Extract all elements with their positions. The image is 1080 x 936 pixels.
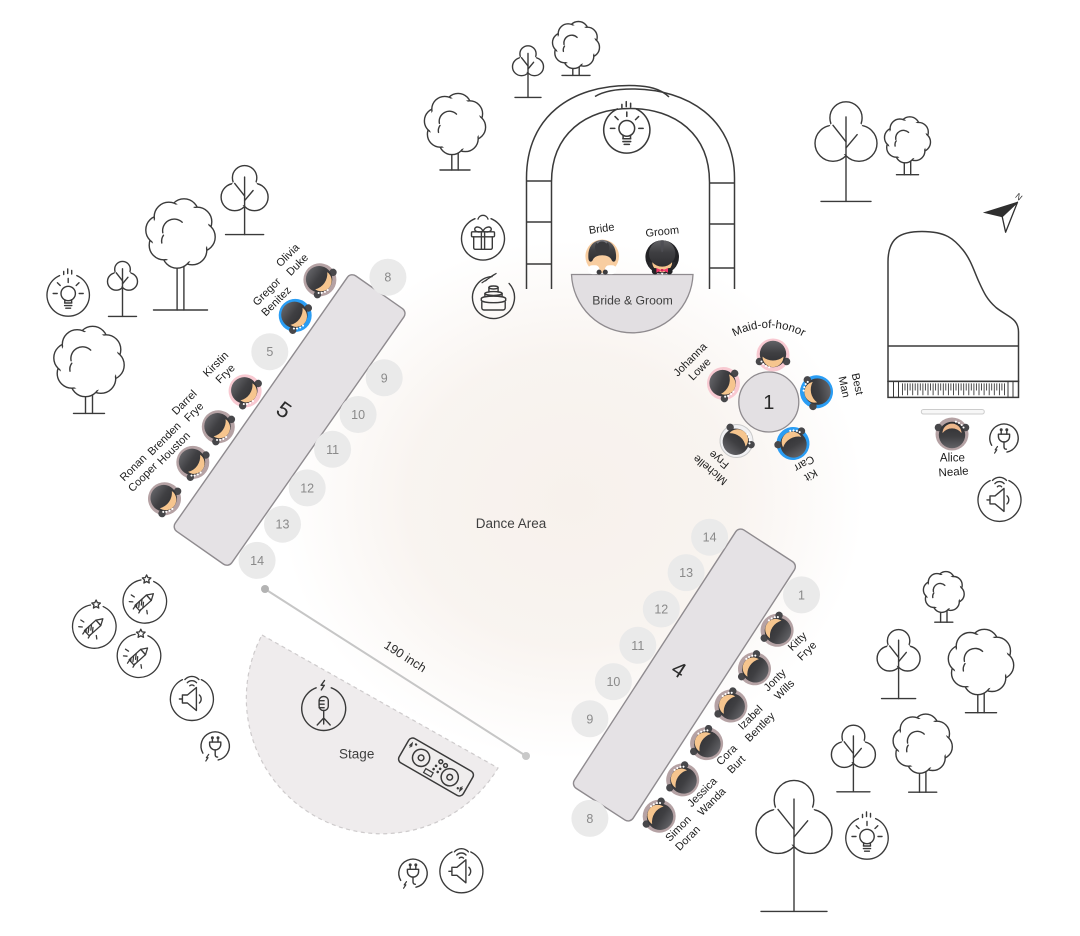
svg-text:13: 13 <box>679 566 693 580</box>
svg-text:11: 11 <box>326 443 339 457</box>
svg-text:10: 10 <box>351 408 365 422</box>
svg-text:Neale: Neale <box>938 465 969 479</box>
svg-text:12: 12 <box>300 481 314 495</box>
svg-text:9: 9 <box>586 712 593 726</box>
svg-text:1: 1 <box>763 392 774 414</box>
svg-text:Alice: Alice <box>940 453 965 465</box>
svg-text:8: 8 <box>384 271 391 285</box>
svg-text:11: 11 <box>631 639 644 653</box>
svg-text:13: 13 <box>276 518 290 532</box>
svg-text:8: 8 <box>586 812 593 826</box>
svg-text:12: 12 <box>654 603 668 617</box>
svg-text:10: 10 <box>606 675 620 689</box>
svg-text:14: 14 <box>250 554 264 568</box>
svg-text:Stage: Stage <box>339 747 374 762</box>
svg-text:Bride & Groom: Bride & Groom <box>592 294 673 308</box>
svg-text:5: 5 <box>266 345 273 359</box>
svg-text:1: 1 <box>798 588 805 602</box>
svg-text:14: 14 <box>703 531 717 545</box>
svg-text:9: 9 <box>381 371 388 385</box>
svg-text:Dance Area: Dance Area <box>476 516 547 531</box>
